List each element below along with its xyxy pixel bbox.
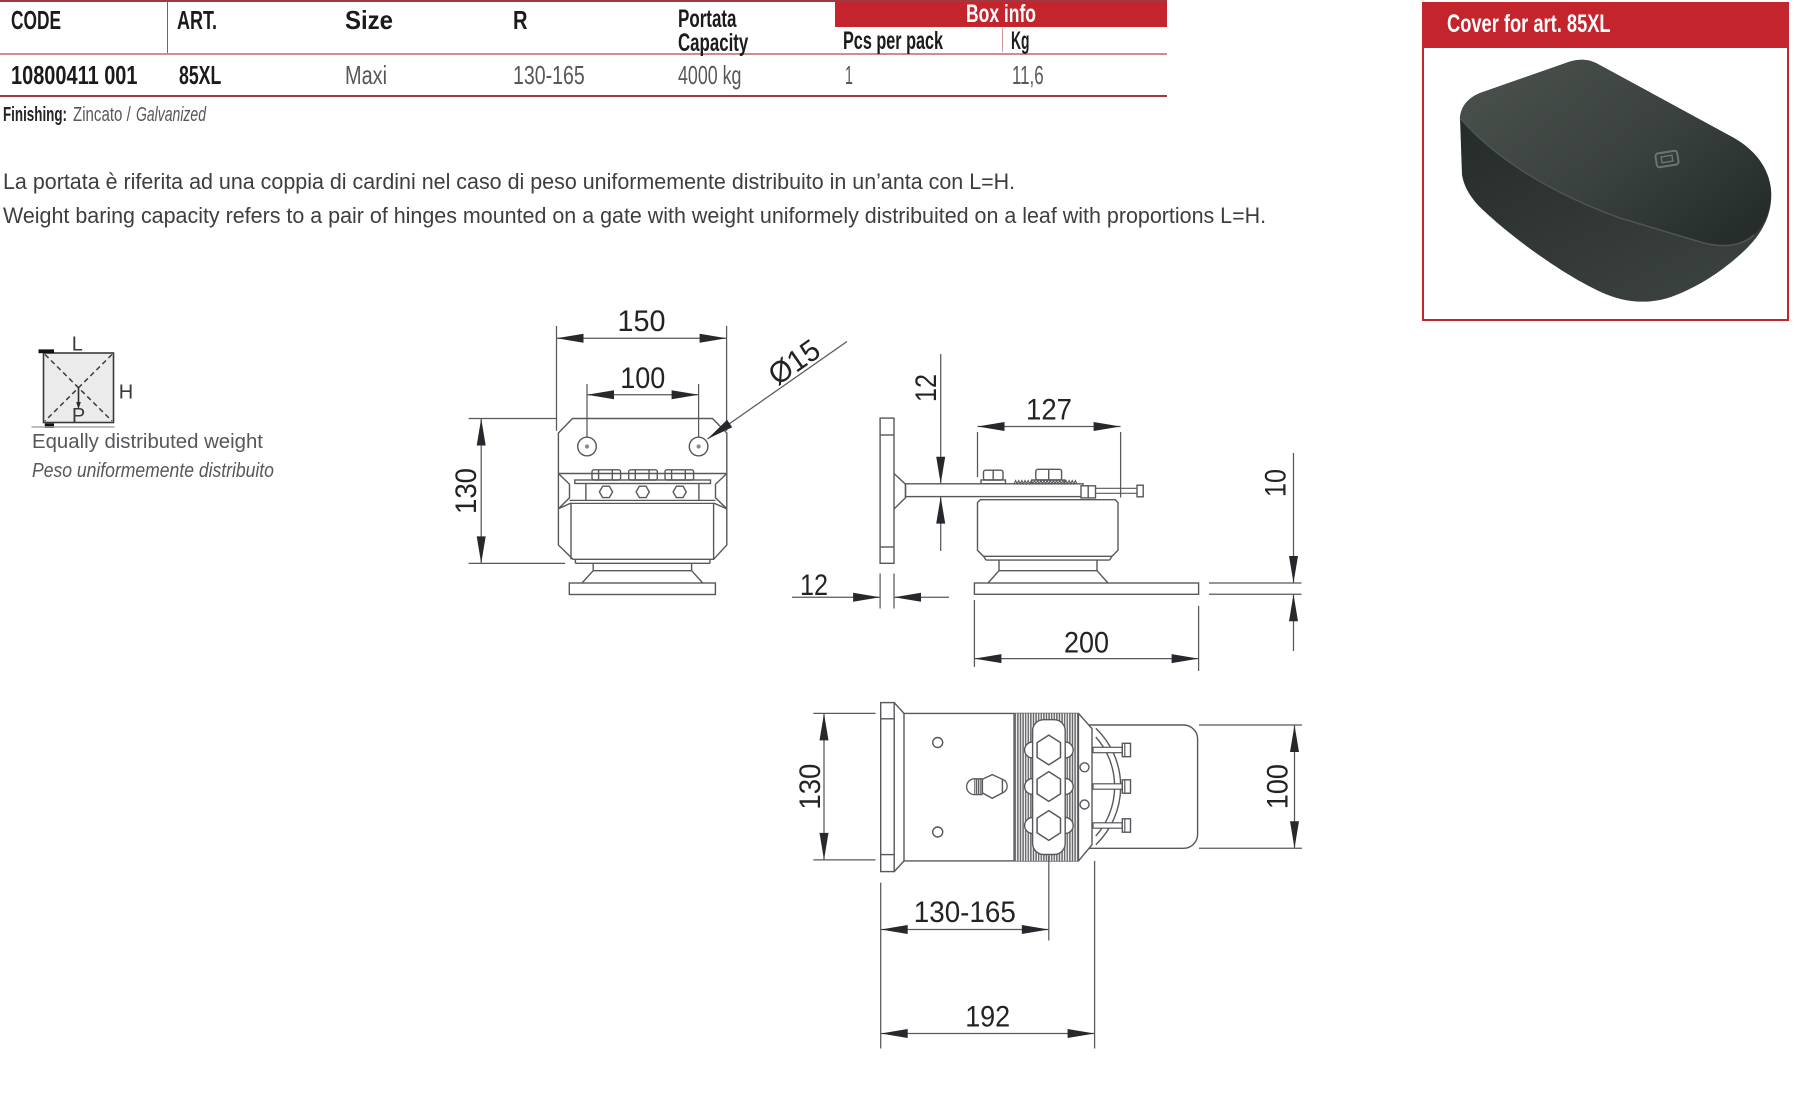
svg-text:L: L	[72, 333, 83, 355]
svg-text:100: 100	[1262, 764, 1295, 809]
svg-text:10: 10	[1260, 469, 1293, 497]
svg-text:100: 100	[620, 362, 665, 395]
svg-text:200: 200	[1064, 627, 1109, 660]
svg-text:127: 127	[1026, 394, 1072, 427]
svg-text:12: 12	[910, 374, 943, 402]
svg-text:H: H	[119, 381, 133, 403]
svg-text:P: P	[72, 405, 85, 427]
svg-text:Ø15: Ø15	[763, 333, 827, 392]
svg-text:130-165: 130-165	[914, 896, 1016, 929]
svg-text:130: 130	[450, 468, 483, 514]
svg-text:150: 150	[618, 305, 666, 338]
svg-text:12: 12	[800, 569, 828, 602]
svg-text:130: 130	[794, 764, 827, 810]
svg-text:192: 192	[965, 1001, 1010, 1034]
